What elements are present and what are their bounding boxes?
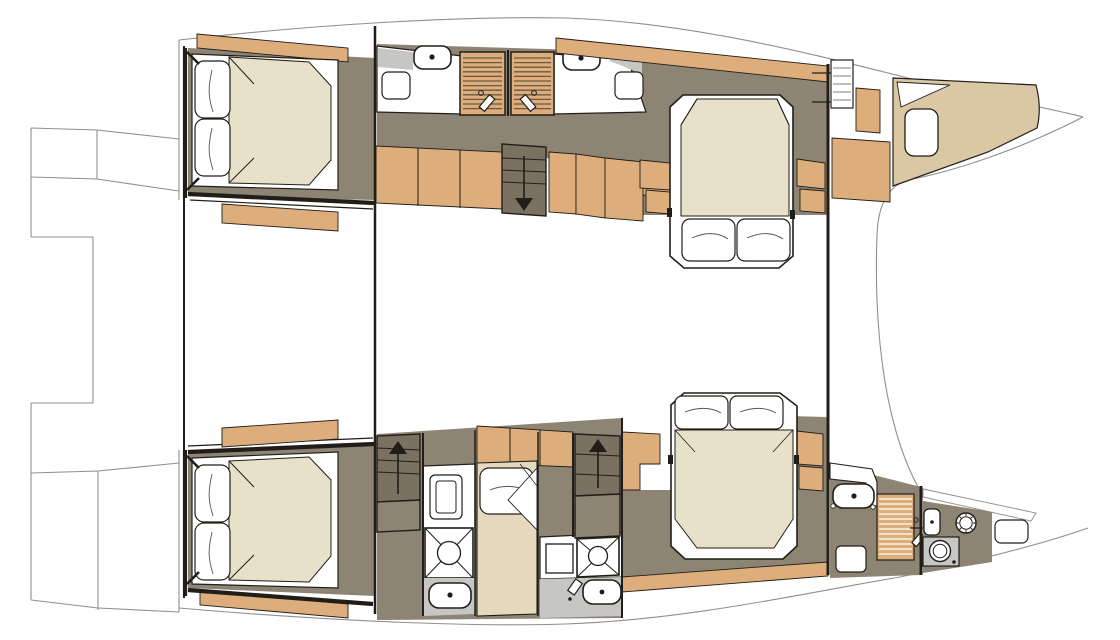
storage-cabinet xyxy=(430,475,462,519)
seat xyxy=(382,72,410,99)
washing-machine xyxy=(923,537,959,566)
bed-step-notch xyxy=(668,455,673,464)
top-aft-cabin xyxy=(188,34,375,200)
storage-locker xyxy=(832,138,890,202)
wardrobe xyxy=(640,160,670,190)
teak-shower-grate xyxy=(877,494,914,560)
floor-hatch xyxy=(836,546,866,572)
pillow xyxy=(737,219,790,261)
shower-tray xyxy=(577,537,619,577)
top-bow-area xyxy=(812,60,1039,202)
catamaran-floor-plan: Catamaran interior layout plan — lower d… xyxy=(0,0,1120,640)
drain-dot xyxy=(568,597,572,601)
washbasin-cabinet xyxy=(546,544,573,573)
seat xyxy=(615,72,643,99)
top-hull xyxy=(185,34,1039,268)
island-bed-mattress xyxy=(681,99,789,216)
cockpit-step-panel xyxy=(222,420,338,447)
bottom-aft-bathroom xyxy=(423,464,475,616)
wardrobe xyxy=(799,466,823,491)
hinge-dot xyxy=(871,505,875,509)
island-bed-mattress xyxy=(675,430,793,548)
cockpit-step-panel xyxy=(222,204,338,231)
bed-step-notch xyxy=(790,210,795,219)
companionway-stairs-down xyxy=(502,144,546,216)
transom-steps-top xyxy=(31,128,179,191)
power-dot xyxy=(952,560,956,564)
wardrobe xyxy=(800,189,825,213)
shower-tray xyxy=(425,528,473,578)
corridor-lockers-aft xyxy=(376,146,502,209)
basin-drain-dot xyxy=(930,520,934,524)
toilet-flush-dot xyxy=(851,493,856,498)
toilet-flush-dot xyxy=(447,592,452,597)
toilet-flush-dot xyxy=(600,590,605,595)
bed-step-notch xyxy=(794,455,799,464)
stair-landing xyxy=(575,494,620,538)
floor-plan-canvas: Catamaran interior layout plan — lower d… xyxy=(0,0,1120,640)
hinge-dot xyxy=(831,504,835,508)
transom-steps-bottom xyxy=(31,463,179,612)
double-bed-mattress xyxy=(229,457,331,582)
wardrobe xyxy=(797,159,825,189)
deck-porthole xyxy=(956,513,976,533)
wardrobe xyxy=(797,431,823,466)
top-aft-bathroom xyxy=(377,46,462,114)
double-bed-mattress xyxy=(229,57,331,185)
storage-box xyxy=(856,88,880,133)
locker-step xyxy=(622,432,660,490)
pillow xyxy=(682,219,735,261)
deck-hatch xyxy=(905,109,938,156)
bottom-mid-bathroom xyxy=(540,533,622,618)
wardrobe xyxy=(646,190,670,214)
bed-step-notch xyxy=(667,208,672,217)
companionway-stairs-up-forward xyxy=(575,434,620,538)
bow-hatch xyxy=(995,520,1028,543)
stair-landing xyxy=(377,500,420,532)
companionway-stairs-up-aft xyxy=(377,434,420,532)
toilet-flush-dot xyxy=(429,54,434,59)
forward-head xyxy=(830,463,1028,578)
swim-platform xyxy=(31,177,93,473)
